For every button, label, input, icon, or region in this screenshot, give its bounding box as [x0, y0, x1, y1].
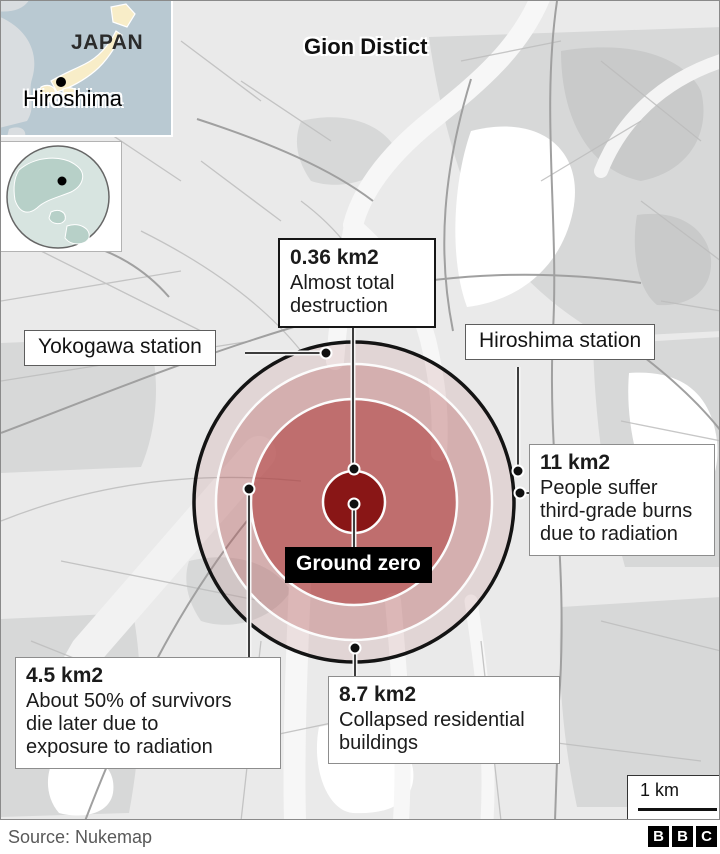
- zone-area-value: 0.36 km2: [290, 246, 424, 271]
- source-credit: Source: Nukemap: [8, 827, 152, 848]
- zone-area-value: 11 km2: [540, 451, 704, 476]
- bbc-logo-letter: C: [696, 826, 717, 847]
- zone-area-value: 8.7 km2: [339, 683, 549, 708]
- map-canvas: Gion Distict 0.36 km2 Almost total destr…: [0, 0, 720, 820]
- bbc-logo: B B C: [648, 826, 717, 847]
- globe-marker-dot: [58, 177, 67, 186]
- zone-callout-survivors: 4.5 km2 About 50% of survivors die later…: [15, 657, 281, 769]
- zone-callout-destruction: 0.36 km2 Almost total destruction: [278, 238, 436, 328]
- country-label: JAPAN: [71, 31, 143, 55]
- hiroshima-station-label: Hiroshima station: [465, 324, 655, 360]
- district-label: Gion Distict: [304, 34, 427, 60]
- bbc-logo-letter: B: [672, 826, 693, 847]
- ground-zero-label: Ground zero: [285, 547, 432, 583]
- scale-line: [638, 808, 717, 811]
- scale-bar: 1 km: [627, 775, 720, 820]
- zone-callout-collapsed: 8.7 km2 Collapsed residential buildings: [328, 676, 560, 764]
- zone-description: Collapsed residential buildings: [339, 709, 549, 756]
- yokogawa-station-label: Yokogawa station: [24, 330, 216, 366]
- globe: [1, 142, 120, 251]
- bbc-logo-letter: B: [648, 826, 669, 847]
- zone-callout-burns: 11 km2 People suffer third-grade burns d…: [529, 444, 715, 556]
- japan-map: [1, 1, 173, 137]
- city-label: Hiroshima: [23, 86, 122, 112]
- globe-locator-inset: [1, 141, 122, 252]
- zone-description: About 50% of survivors die later due to …: [26, 690, 270, 760]
- zone-description: Almost total destruction: [290, 272, 424, 319]
- scale-label: 1 km: [640, 780, 679, 801]
- infographic: Gion Distict 0.36 km2 Almost total destr…: [0, 0, 720, 854]
- zone-description: People suffer third-grade burns due to r…: [540, 477, 704, 547]
- footer: Source: Nukemap B B C: [0, 820, 720, 854]
- zone-area-value: 4.5 km2: [26, 664, 270, 689]
- japan-locator-inset: JAPAN Hiroshima: [1, 1, 173, 137]
